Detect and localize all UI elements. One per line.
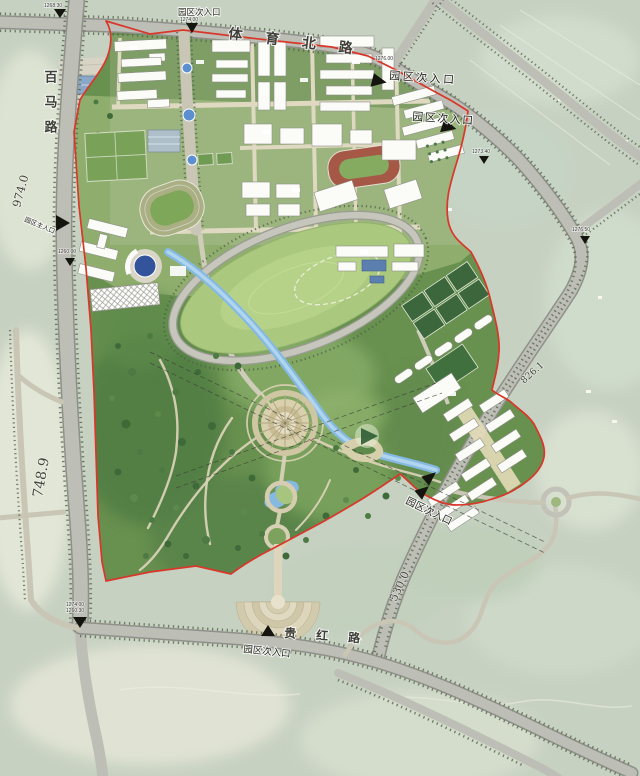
entrance-label-secondary-north: 园区次入口 [178,7,221,17]
main-hall [148,130,180,152]
fountain [182,63,192,73]
play-icon[interactable] [355,424,379,448]
central-plaza [255,393,315,453]
spot-elevation: 1268.30 [44,3,62,9]
blue-panel-building [362,260,386,271]
spot-elevation: 1260.30 [66,608,84,614]
sports-field-west [85,130,147,181]
fountain [183,109,195,121]
spot-elevation: 1276.50 [572,227,590,233]
spot-elevation: 1274.00 [180,17,198,23]
fountain [187,155,197,165]
spot-elevation: 1260.00 [58,249,76,255]
masterplan-map: 体育北路 百马路 贵红路 园区次入口 园区次入口 园区次入口 园区次入口 园区次… [0,0,640,776]
spot-elevation: 1276.00 [375,56,393,62]
spot-elevation: 1273.40 [472,149,490,155]
road-label-baima: 百马路 [43,70,58,145]
